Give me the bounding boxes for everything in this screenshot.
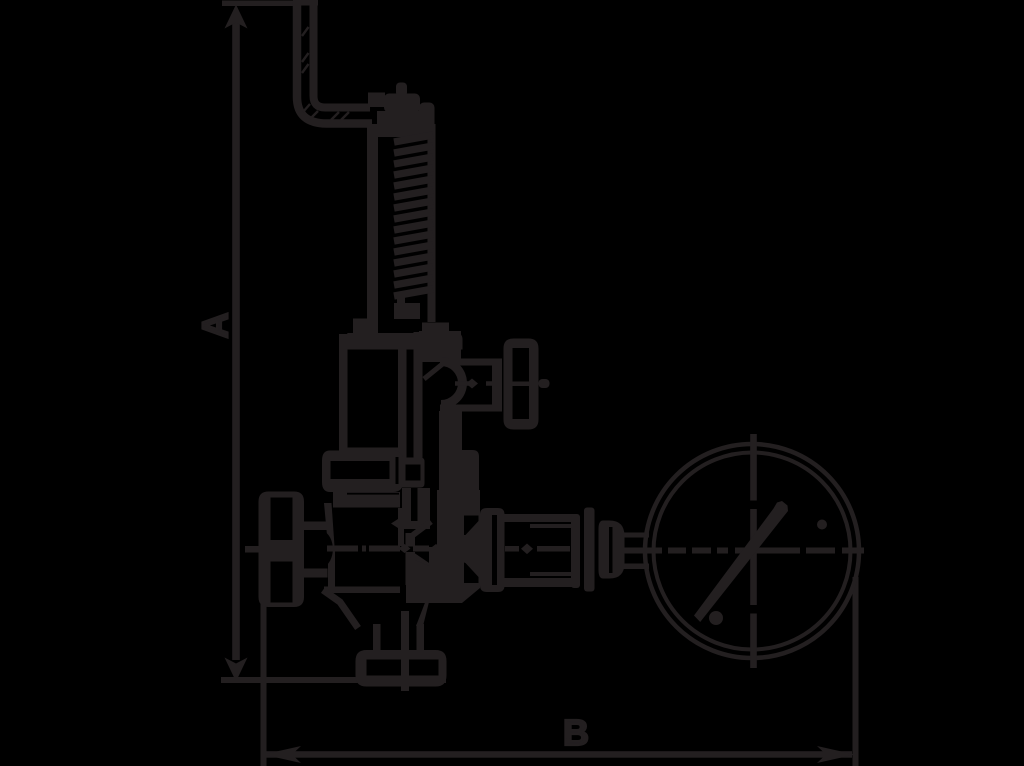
- svg-text:A: A: [195, 313, 236, 339]
- svg-text:B: B: [563, 712, 589, 753]
